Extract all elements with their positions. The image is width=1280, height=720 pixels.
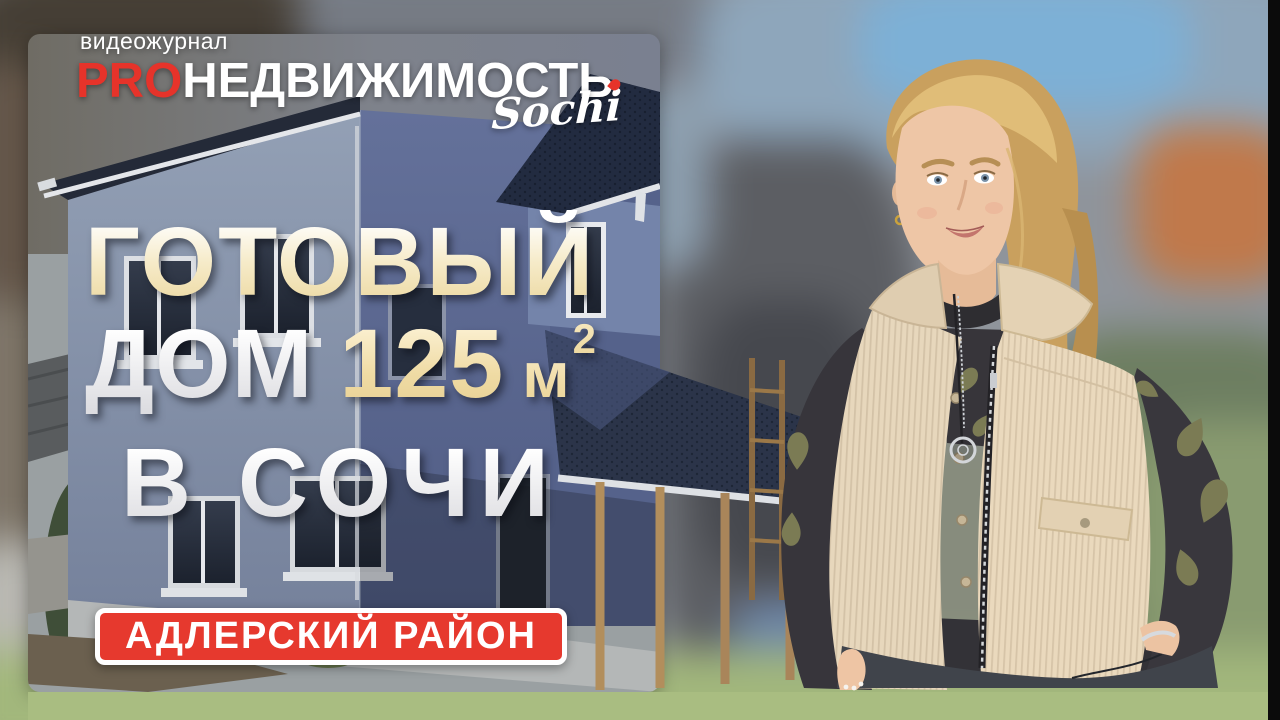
logo-city-text: Sochi (491, 81, 623, 139)
grass-strip (28, 692, 1268, 720)
headline-unit-sup: 2 (573, 289, 597, 389)
logo-kicker: видеожурнал (80, 28, 636, 55)
headline-unit: м (522, 325, 570, 425)
video-thumbnail: видеожурнал PROНЕДВИЖИМОСТЬ Sochi ГОТОВЫ… (0, 0, 1280, 720)
logo-brand-pro: PRO (76, 54, 182, 108)
headline-line3: В СОЧИ (121, 433, 559, 533)
blush (917, 207, 937, 219)
zipper-pull (990, 373, 997, 388)
headline-number: 125 (339, 314, 504, 414)
face (896, 106, 1014, 279)
headline-line2: ДОМ125м2 (40, 314, 640, 433)
blush (985, 202, 1003, 214)
channel-logo: видеожурнал PROНЕДВИЖИМОСТЬ Sochi (76, 28, 636, 148)
pendant (951, 438, 975, 462)
right-black-bar (1268, 0, 1280, 720)
headline-word: ДОМ (85, 314, 313, 414)
district-badge-label: АДЛЕРСКИЙ РАЙОН (125, 615, 537, 658)
presenter (742, 28, 1280, 695)
headline-line1: ГОТОВЫЙ (85, 210, 595, 314)
headline: ГОТОВЫЙ ДОМ125м2 В СОЧИ (40, 210, 640, 533)
pocket-snap (1080, 518, 1090, 528)
district-badge: АДЛЕРСКИЙ РАЙОН (95, 608, 567, 665)
